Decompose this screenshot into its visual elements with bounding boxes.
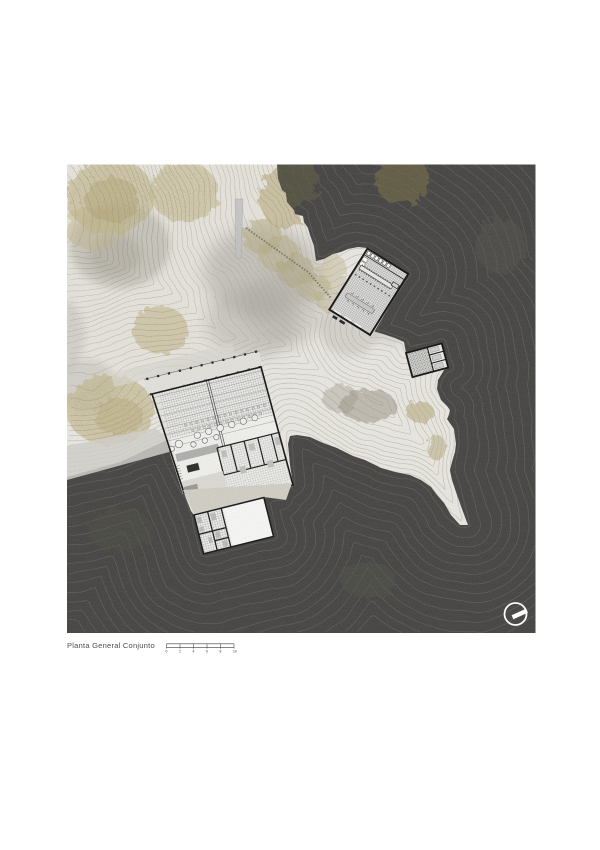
svg-text:4: 4 [193,650,195,654]
svg-text:Planta General Conjunto: Planta General Conjunto [67,641,155,650]
svg-text:0: 0 [166,650,168,654]
svg-text:2: 2 [179,650,181,654]
svg-text:10: 10 [233,650,237,654]
svg-text:8: 8 [220,650,222,654]
svg-text:6: 6 [206,650,208,654]
